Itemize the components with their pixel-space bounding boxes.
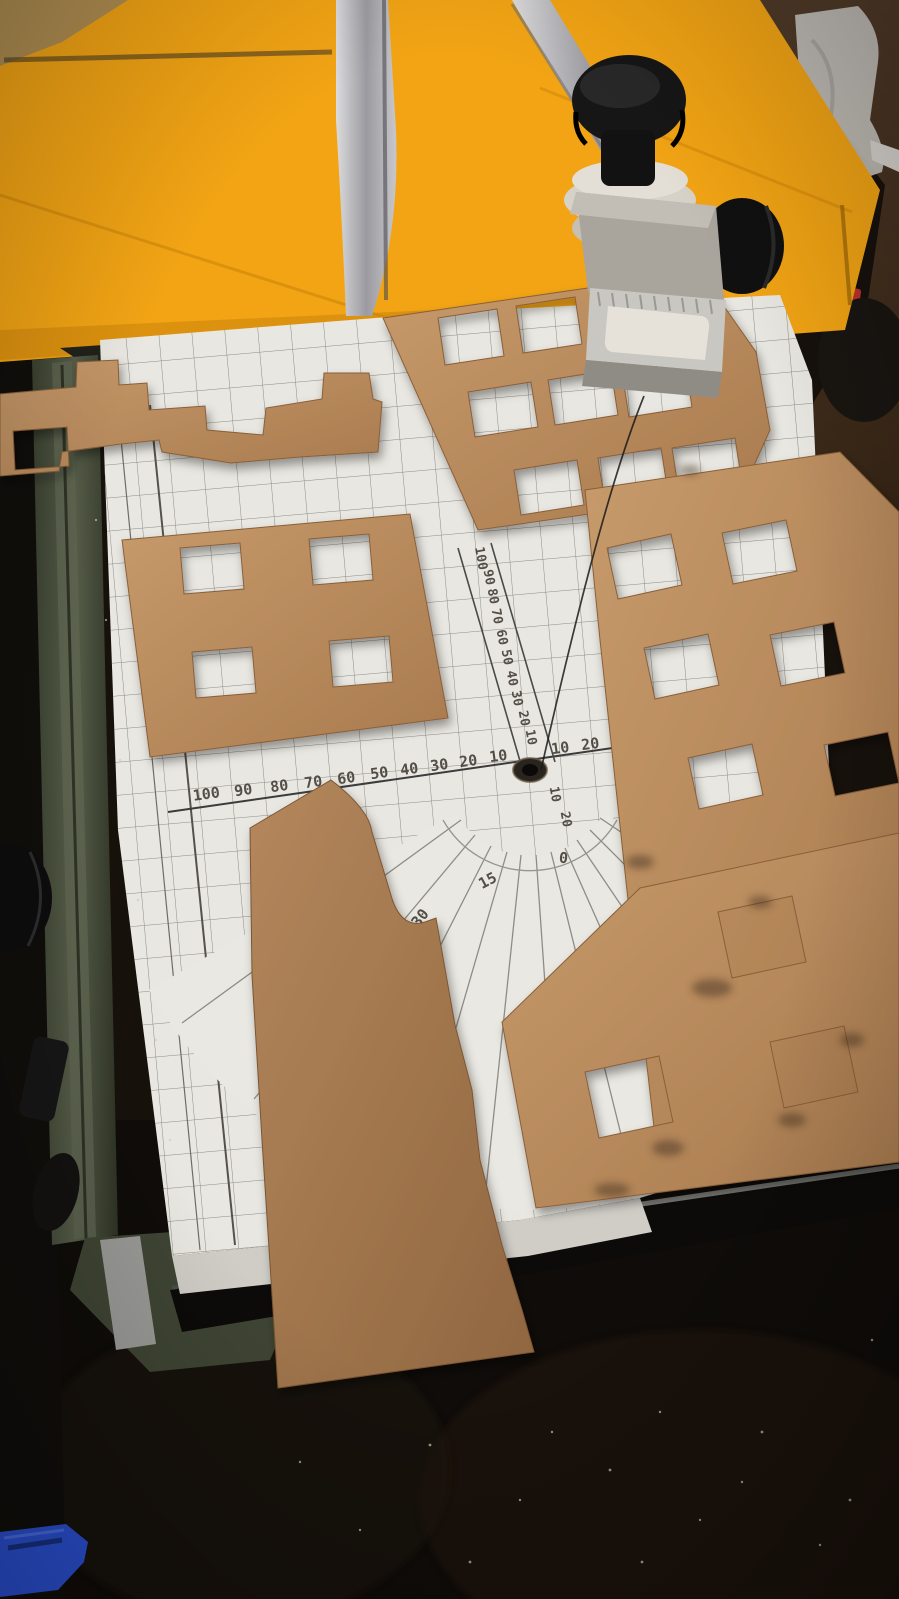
vignette-overlay: [0, 0, 899, 1599]
scene-canvas: 100 90 80 70 60 50 40 30 20 10 10 20 100…: [0, 0, 899, 1599]
photo-hot-wire-cutter-scene: 100 90 80 70 60 50 40 30 20 10 10 20 100…: [0, 0, 899, 1599]
